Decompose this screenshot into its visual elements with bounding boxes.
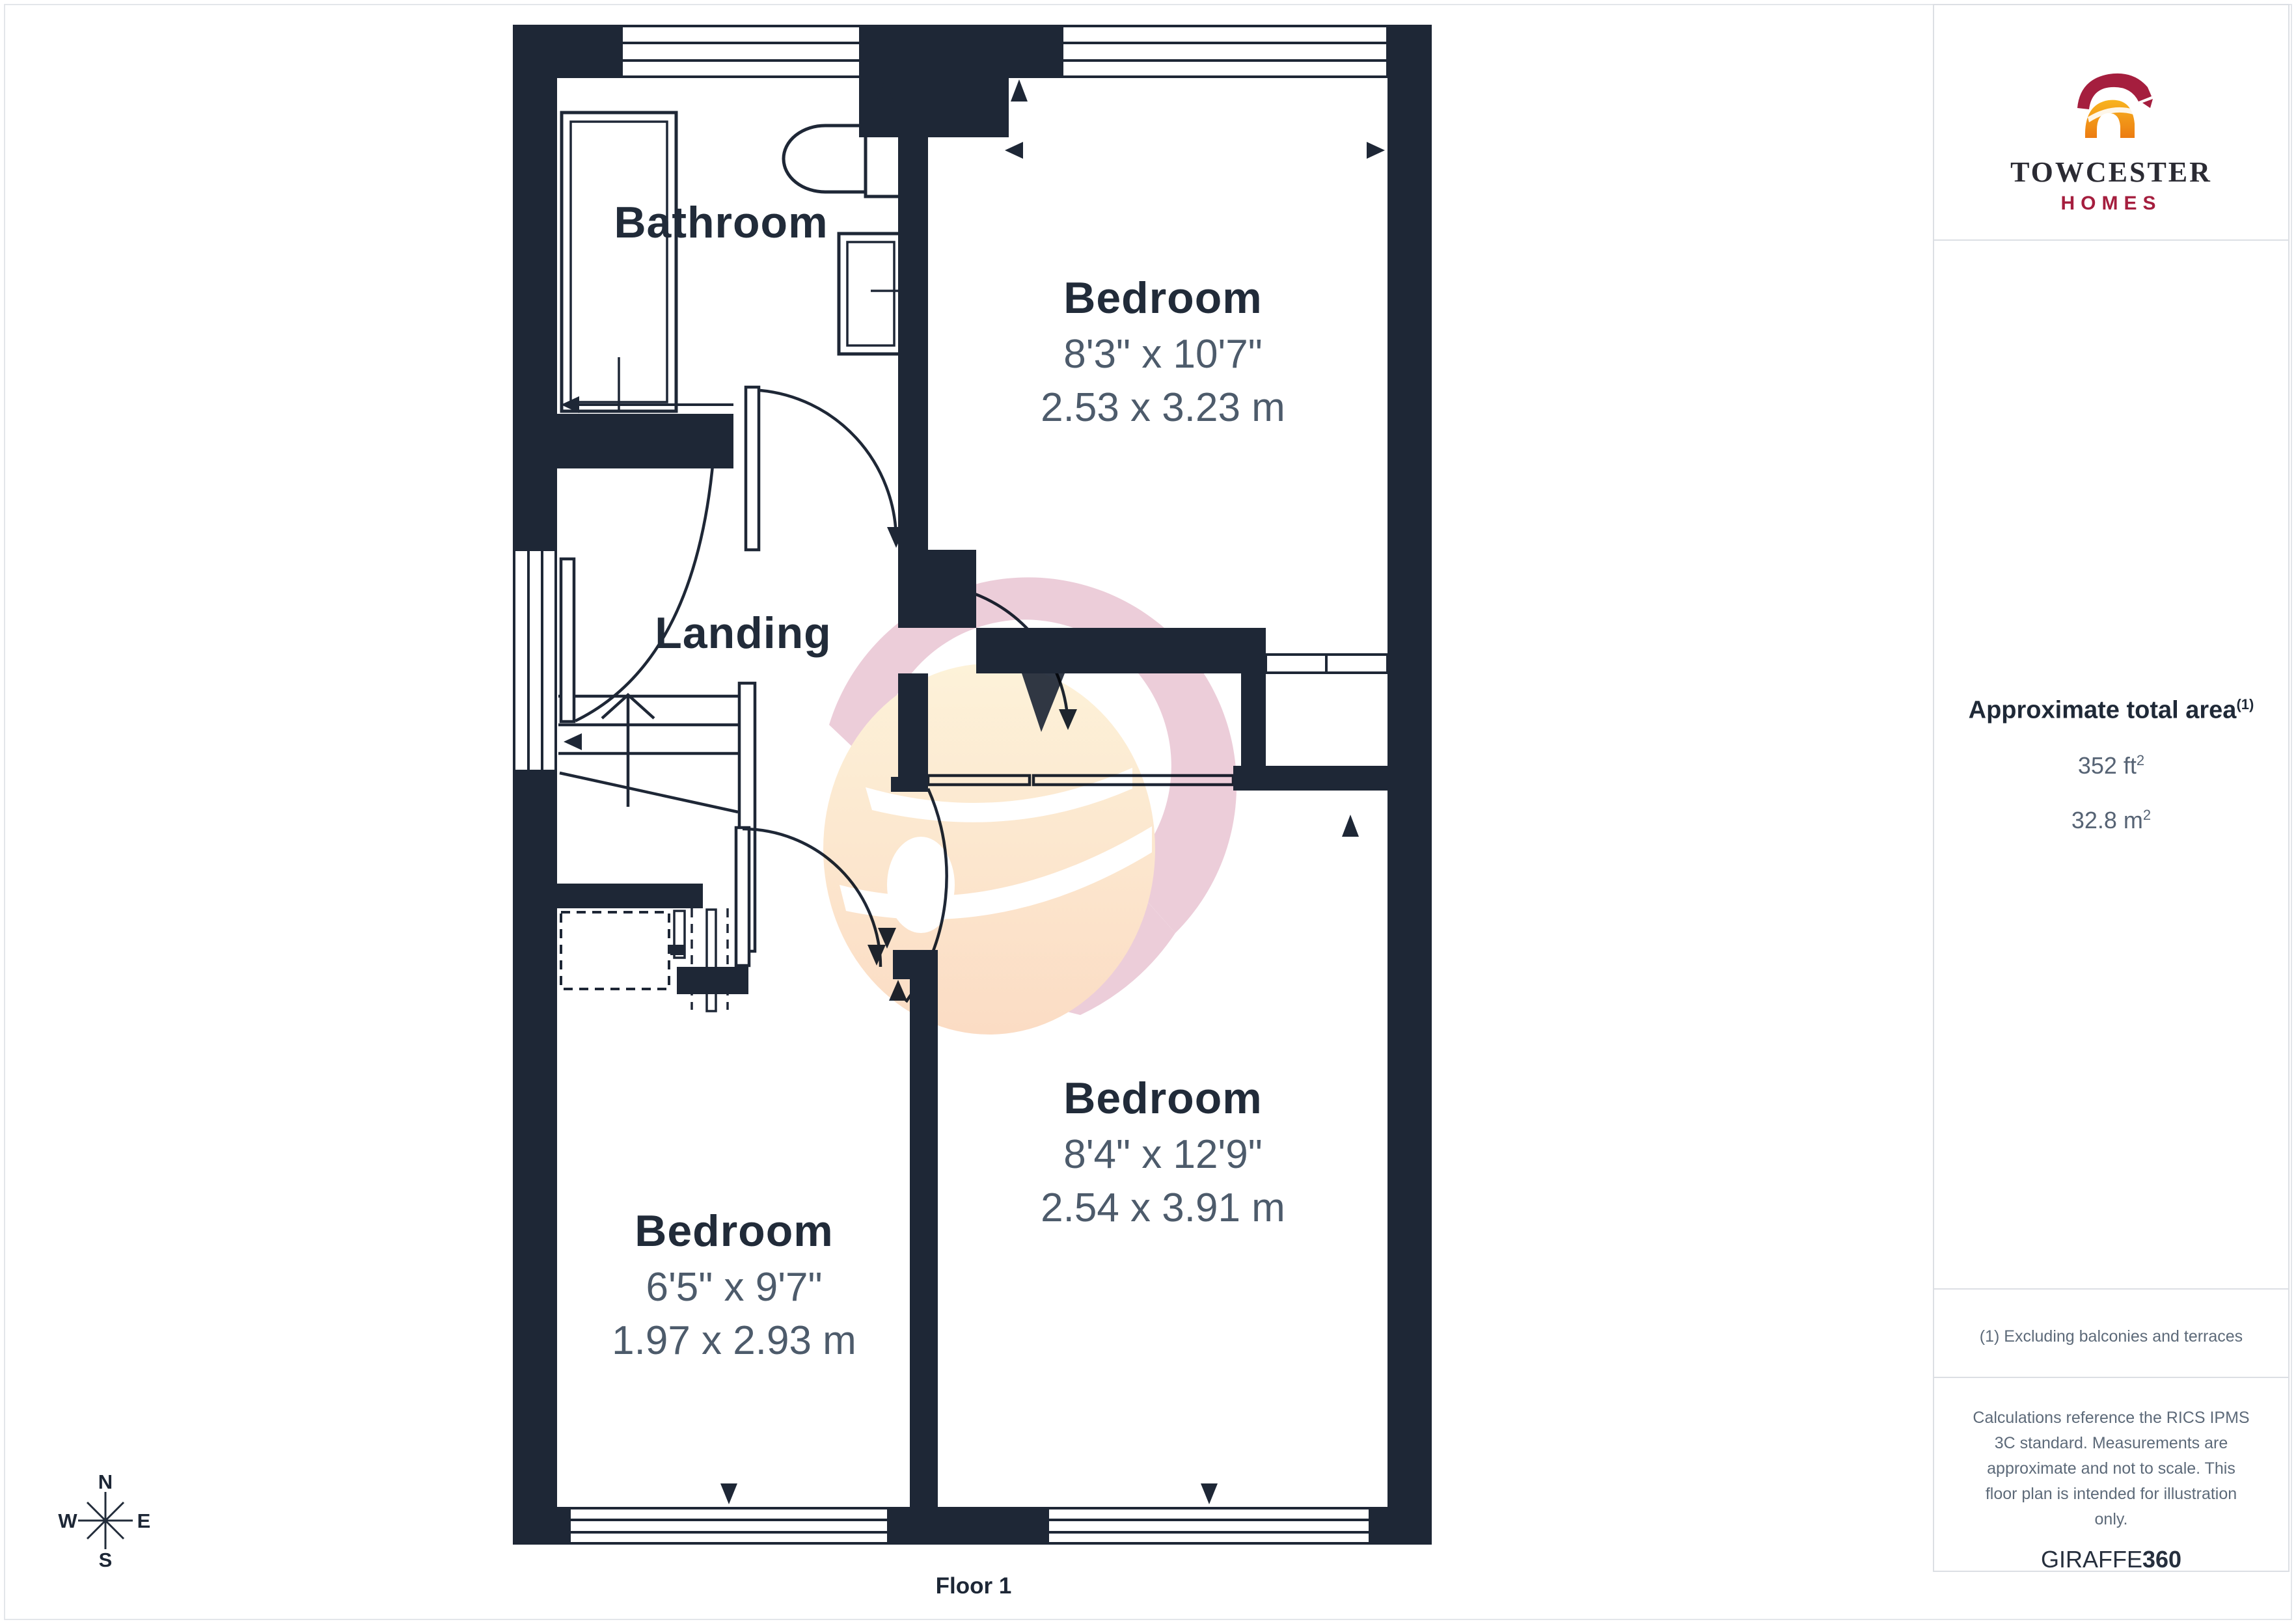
area-title: Approximate total area(1) xyxy=(1934,696,2288,725)
room-label-bedroom-1: Bedroom 8'3" x 10'7" 2.53 x 3.23 m xyxy=(1041,268,1285,435)
bathroom-door-leaf xyxy=(746,387,759,550)
logo-title: TOWCESTER xyxy=(1934,156,2288,189)
logo-subtitle: HOMES xyxy=(1934,193,2288,215)
window-bathroom-top xyxy=(622,26,860,77)
window-bedroom1-top xyxy=(1062,26,1387,77)
floorplan-page: Bathroom Bedroom 8'3" x 10'7" 2.53 x 3.2… xyxy=(0,0,2296,1624)
floor-label: Floor 1 xyxy=(936,1573,1012,1599)
compass-north-label: N xyxy=(98,1470,113,1494)
sidebar-divider xyxy=(1934,1377,2288,1378)
closet-sliding-door xyxy=(1266,655,1387,673)
area-metric: 32.8 m2 xyxy=(1934,807,2288,834)
wall-closet-left xyxy=(1241,673,1266,766)
helmet-logo-icon xyxy=(2066,68,2157,146)
wall-bathroom-bedroom1 xyxy=(898,78,928,550)
compass-east-label: E xyxy=(137,1509,151,1533)
bedroom3-door-leaf xyxy=(736,828,749,966)
wall-door-block xyxy=(893,950,938,979)
room-label-bathroom: Bathroom xyxy=(614,193,828,252)
giraffe360-credit: GIRAFFE360 xyxy=(1934,1546,2288,1573)
sink-icon xyxy=(839,234,903,354)
sidebar-divider xyxy=(1934,239,2288,241)
info-sidebar: TOWCESTER HOMES Approximate total area(1… xyxy=(1933,4,2289,1572)
total-area-block: Approximate total area(1) 352 ft2 32.8 m… xyxy=(1934,696,2288,834)
disclaimer: Calculations reference the RICS IPMS 3C … xyxy=(1934,1405,2288,1532)
wall-landing-south xyxy=(677,967,748,994)
window-bedroom2-bottom xyxy=(1048,1508,1370,1543)
wall-bedroom-divider xyxy=(910,979,938,1507)
wall-corner-block xyxy=(898,550,976,628)
compass-south-label: S xyxy=(99,1549,113,1572)
bathroom-fixtures xyxy=(562,113,903,411)
wall-under-stairs xyxy=(557,884,703,908)
shower-icon xyxy=(562,113,676,411)
room-label-bedroom-2: Bedroom 8'4" x 12'9" 2.54 x 3.91 m xyxy=(1041,1068,1285,1235)
room-label-bedroom-3: Bedroom 6'5" x 9'7" 1.97 x 2.93 m xyxy=(612,1201,856,1368)
wall-bedroom1-south xyxy=(976,628,1266,673)
wall-bathroom-landing xyxy=(557,414,733,468)
wall-closet-bottom xyxy=(1233,766,1387,791)
area-footnote: (1) Excluding balconies and terraces xyxy=(1934,1327,2288,1346)
compass-west-label: W xyxy=(58,1509,77,1533)
window-bedroom3-bottom xyxy=(569,1508,888,1543)
landing-door-leaf xyxy=(561,559,574,722)
area-imperial: 352 ft2 xyxy=(1934,752,2288,779)
sidebar-divider xyxy=(1934,1288,2288,1290)
chimney-breast xyxy=(859,78,1009,137)
wall-landing-east xyxy=(898,673,928,778)
compass-icon xyxy=(73,1488,138,1553)
towcester-homes-logo: TOWCESTER HOMES xyxy=(1934,68,2288,215)
under-stairs-storage xyxy=(561,908,728,1011)
window-landing-left xyxy=(514,550,556,771)
room-label-landing: Landing xyxy=(655,603,831,663)
